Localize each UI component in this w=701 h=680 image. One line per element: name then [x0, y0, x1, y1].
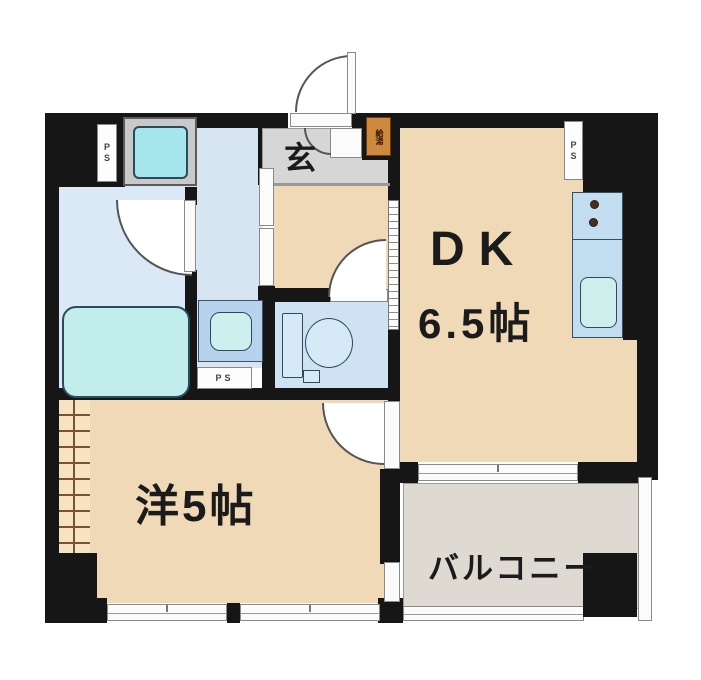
label-balcony: バルコニー — [428, 543, 597, 588]
window-rail — [108, 613, 226, 614]
kitchen-sink — [580, 277, 617, 328]
western-room-south-window-right — [240, 604, 380, 621]
bathroom-door-panel — [184, 200, 196, 272]
toilet-bowl — [305, 318, 353, 368]
wall-kitchen-side-lower — [637, 340, 658, 480]
western-room-south-window-left — [107, 604, 227, 621]
railing-line — [404, 614, 583, 615]
stove-burner-icon — [590, 200, 599, 209]
window-rail — [241, 613, 379, 614]
wash-basin — [210, 312, 252, 351]
ladder-hatch-spine — [73, 400, 75, 553]
pipe-space-box-right: PS — [564, 121, 583, 180]
western-room-door-panel — [384, 401, 400, 469]
pipe-space-box-left: PS — [97, 124, 117, 182]
wall-left — [45, 113, 59, 618]
toilet-tank — [282, 313, 303, 378]
floor-plan: PS PS PS 給湯 玄 DK 6.5帖 洋5帖 バルコニー — [0, 0, 701, 680]
washing-machine — [133, 126, 188, 179]
wall-corner-bottom-left — [45, 598, 107, 623]
label-entrance: 玄 — [284, 133, 316, 179]
label-dk-name: DK — [430, 222, 527, 277]
window-mullion — [227, 603, 240, 623]
washroom-sliding-door-upper — [259, 168, 274, 226]
wall-kitchen-side — [623, 192, 644, 340]
ladder-hatch-strip — [59, 400, 90, 553]
wall-toilet-west — [262, 300, 275, 392]
stove-burner-icon — [589, 218, 598, 227]
genkan-step-line — [262, 183, 390, 186]
window-sash-tick — [309, 605, 311, 612]
window-sash-tick — [166, 605, 168, 612]
shoe-cabinet — [330, 128, 362, 158]
label-western-room: 洋5帖 — [135, 470, 256, 534]
entrance-door-arc — [295, 55, 352, 112]
pipe-space-box-center: PS — [197, 367, 252, 389]
entrance-door-panel — [347, 52, 356, 114]
dk-balcony-window — [418, 464, 578, 481]
entrance-threshold — [290, 113, 352, 127]
bathtub — [62, 306, 190, 398]
wall-western-room-east — [380, 469, 400, 564]
label-dk-size: 6.5帖 — [418, 290, 534, 351]
window-sash-tick — [497, 465, 499, 472]
western-room-east-window — [384, 562, 400, 602]
counter-divider — [573, 239, 622, 240]
water-heater-box: 給湯 — [366, 117, 391, 156]
toilet-flush-box — [303, 370, 320, 383]
washroom-sliding-door-lower — [259, 228, 274, 286]
balcony-right-railing — [638, 477, 652, 621]
window-rail — [419, 473, 577, 474]
dk-wall-hatch-strip — [388, 200, 399, 330]
balcony-bottom-railing — [403, 606, 584, 621]
wall-balcony-north-right — [578, 462, 644, 483]
